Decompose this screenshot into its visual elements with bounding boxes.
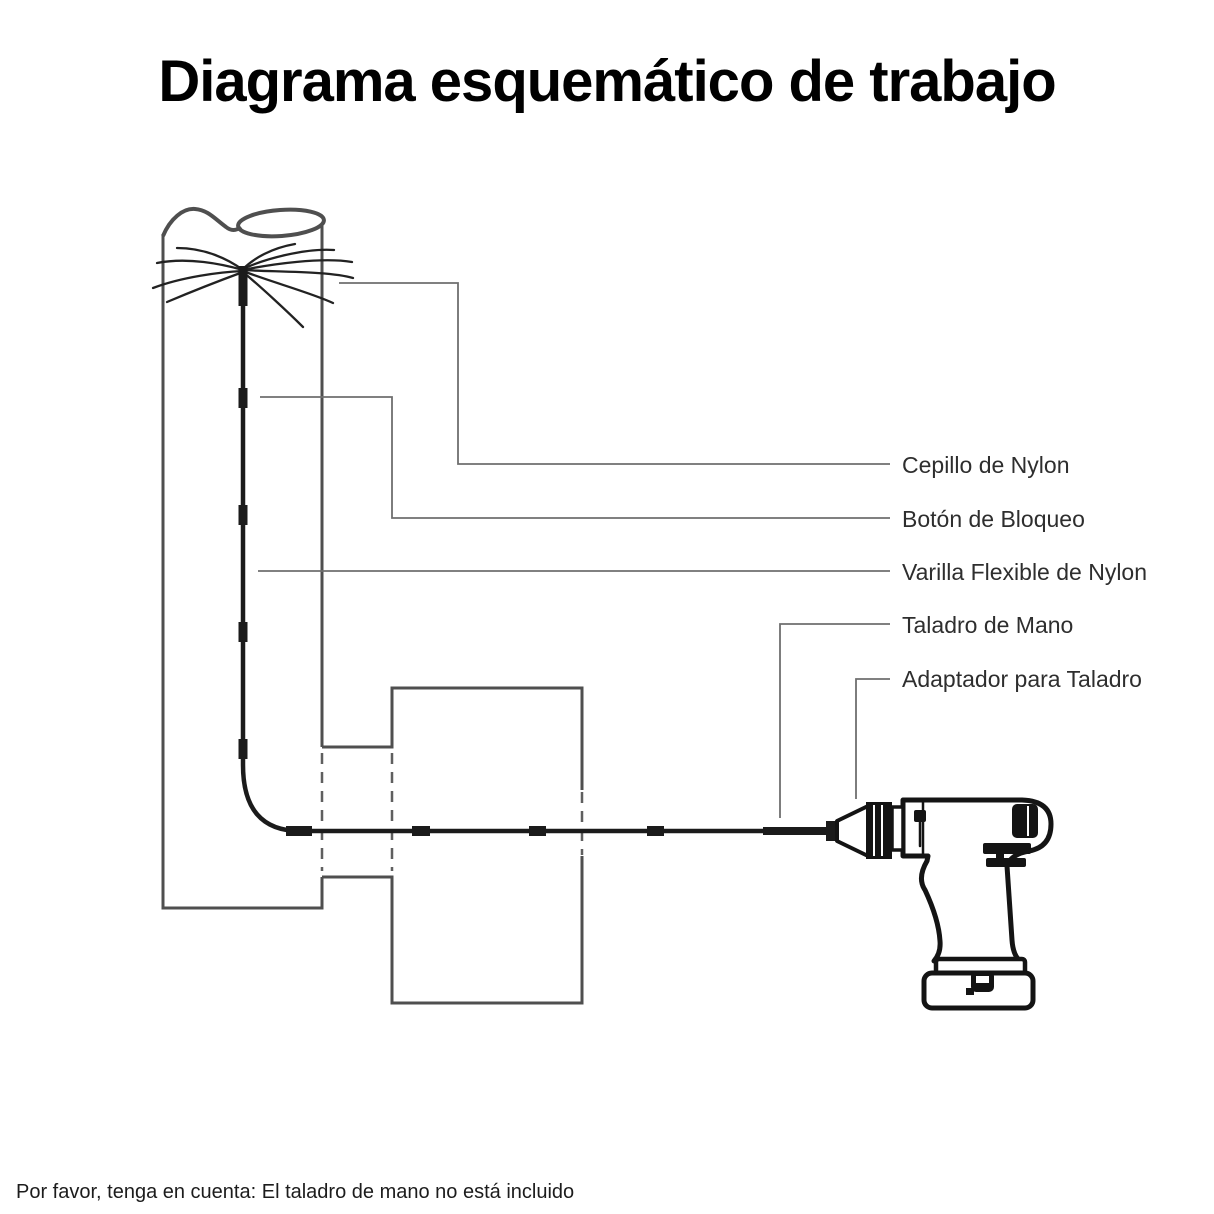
label-flexible-nylon-rod: Varilla Flexible de Nylon xyxy=(902,558,1147,586)
schematic-diagram xyxy=(0,0,1214,1214)
hand-drill xyxy=(837,800,1051,1008)
leader-line-lock-button xyxy=(260,397,890,518)
wall-hidden-edges xyxy=(322,753,582,871)
leader-line-drill-adapter xyxy=(856,679,890,799)
chimney-opening-ellipse xyxy=(237,207,325,239)
drill-side-knob xyxy=(914,810,926,822)
battery-release-slot xyxy=(976,976,989,983)
wall-upper-outline xyxy=(322,688,582,790)
drill-collar xyxy=(892,807,903,850)
footer-disclaimer-note: Por favor, tenga en cuenta: El taladro d… xyxy=(16,1179,574,1205)
wall-lower-outline xyxy=(322,856,582,1003)
leader-line-brush xyxy=(339,283,890,464)
drill-chuck-cone xyxy=(837,806,868,856)
drill-vent xyxy=(1012,804,1038,838)
label-drill-adapter: Adaptador para Taladro xyxy=(902,665,1142,693)
drill-chuck-rings xyxy=(866,802,892,859)
leader-line-hand-drill xyxy=(780,624,890,818)
label-nylon-brush: Cepillo de Nylon xyxy=(902,451,1069,479)
label-lock-button: Botón de Bloqueo xyxy=(902,505,1085,533)
page: Diagrama esquemático de trabajo xyxy=(0,0,1214,1214)
leader-lines xyxy=(258,283,890,818)
label-hand-drill: Taladro de Mano xyxy=(902,611,1073,639)
chimney-rim-wavy-edge xyxy=(163,209,241,236)
wall-section xyxy=(322,688,582,1003)
